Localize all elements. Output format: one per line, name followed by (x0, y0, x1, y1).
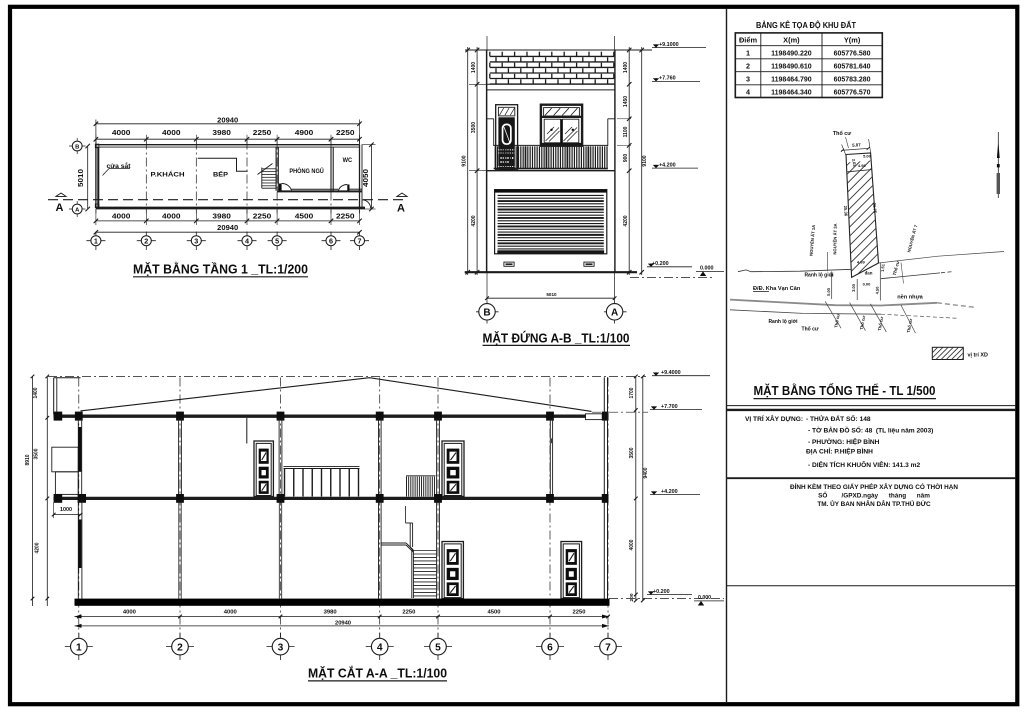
svg-text:2250: 2250 (336, 128, 355, 137)
svg-text:4.50: 4.50 (874, 286, 879, 295)
svg-text:VỊ TRÍ XÂY DỰNG:: VỊ TRÍ XÂY DỰNG: (745, 414, 803, 423)
svg-text:1000: 1000 (60, 507, 72, 513)
svg-text:3980: 3980 (212, 211, 231, 220)
svg-text:Ranh lộ giới: Ranh lộ giới (804, 272, 834, 278)
svg-text:20940: 20940 (217, 225, 238, 232)
svg-text:4200: 4200 (34, 542, 40, 553)
svg-text:5010: 5010 (76, 169, 85, 187)
svg-text:MẶT BẰNG TẦNG 1 _TL:1/200: MẶT BẰNG TẦNG 1 _TL:1/200 (133, 261, 308, 276)
svg-text:3.00: 3.00 (851, 283, 856, 292)
svg-text:9100: 9100 (642, 155, 648, 166)
svg-text:1: 1 (94, 236, 98, 245)
svg-text:đan: đan (865, 271, 873, 276)
svg-text:1450: 1450 (623, 96, 629, 107)
svg-text:20940: 20940 (335, 620, 351, 626)
svg-text:0.000: 0.000 (698, 595, 711, 601)
svg-text:25.36: 25.36 (843, 205, 849, 217)
svg-text:+7.700: +7.700 (661, 404, 678, 410)
svg-text:9100: 9100 (461, 155, 467, 166)
svg-text:3: 3 (278, 642, 284, 653)
svg-text:- PHƯỜNG: HIỆP BÌNH: - PHƯỜNG: HIỆP BÌNH (808, 437, 880, 446)
svg-text:MẶT CẮT A-A _TL:1/100: MẶT CẮT A-A _TL:1/100 (308, 665, 447, 680)
svg-text:2250: 2250 (253, 211, 271, 220)
svg-text:MẶT ĐỨNG A-B _TL:1/100: MẶT ĐỨNG A-B _TL:1/100 (483, 331, 630, 346)
svg-text:Đ/Đ. Kha Vạn Cân: Đ/Đ. Kha Vạn Cân (753, 286, 801, 292)
svg-text:5010: 5010 (546, 292, 557, 297)
svg-text:4: 4 (746, 87, 750, 96)
svg-text:+9.4000: +9.4000 (661, 370, 681, 376)
svg-text:1.51: 1.51 (880, 263, 886, 272)
svg-text:4900: 4900 (295, 128, 314, 137)
svg-text:2: 2 (746, 62, 750, 71)
svg-text:4.99: 4.99 (858, 163, 867, 168)
svg-text:1100: 1100 (623, 126, 629, 137)
svg-text:4000: 4000 (123, 610, 136, 616)
svg-text:1: 1 (76, 642, 82, 653)
svg-text:A: A (397, 203, 405, 215)
svg-text:PHÒNG NGỦ: PHÒNG NGỦ (289, 166, 324, 175)
svg-text:3980: 3980 (212, 128, 231, 137)
svg-text:4000: 4000 (112, 128, 131, 137)
svg-text:4500: 4500 (488, 610, 501, 616)
svg-text:1700: 1700 (629, 387, 635, 398)
svg-text:4000: 4000 (162, 211, 181, 220)
svg-text:0.000: 0.000 (700, 266, 714, 272)
svg-text:1198464.340: 1198464.340 (771, 89, 812, 96)
svg-text:Thổ cư: Thổ cư (802, 326, 819, 333)
svg-text:5.00: 5.00 (826, 287, 831, 296)
svg-text:4000: 4000 (112, 211, 131, 220)
svg-text:605783.280: 605783.280 (834, 77, 871, 84)
svg-text:5: 5 (435, 642, 441, 653)
svg-text:1400: 1400 (623, 62, 629, 73)
svg-text:2250: 2250 (336, 211, 355, 220)
svg-text:Ranh lộ giới: Ranh lộ giới (768, 319, 798, 325)
svg-text:8910: 8910 (25, 454, 31, 465)
svg-text:1198490.220: 1198490.220 (771, 51, 812, 58)
svg-text:BẢNG KÊ TỌA ĐỘ KHU ĐẤT: BẢNG KÊ TỌA ĐỘ KHU ĐẤT (756, 19, 857, 30)
svg-text:A: A (56, 202, 64, 214)
svg-text:6: 6 (547, 642, 553, 653)
svg-text:B: B (75, 145, 79, 151)
svg-text:2250: 2250 (253, 128, 271, 137)
svg-text:4000: 4000 (224, 610, 237, 616)
svg-text:3500: 3500 (471, 122, 477, 133)
svg-text:3: 3 (194, 236, 198, 245)
svg-text:4: 4 (377, 642, 383, 653)
svg-text:nền nhựa: nền nhựa (897, 294, 923, 300)
svg-text:605781.640: 605781.640 (834, 64, 871, 71)
svg-text:5.07: 5.07 (852, 142, 861, 148)
svg-text:2: 2 (177, 642, 183, 653)
svg-text:200: 200 (629, 593, 634, 601)
svg-text:5: 5 (275, 236, 279, 245)
svg-text:1400: 1400 (33, 387, 39, 398)
svg-text:+9.1000: +9.1000 (659, 42, 679, 48)
svg-text:Y(m): Y(m) (844, 35, 861, 44)
svg-text:4500: 4500 (295, 211, 314, 220)
svg-text:7: 7 (358, 236, 362, 245)
svg-text:4000: 4000 (629, 539, 635, 550)
svg-text:Thổ cư: Thổ cư (833, 130, 851, 137)
svg-text:1198464.790: 1198464.790 (771, 77, 812, 84)
svg-text:7: 7 (605, 642, 611, 653)
svg-text:605776.570: 605776.570 (834, 89, 871, 96)
svg-text:+0.200: +0.200 (653, 589, 670, 595)
svg-text:9400: 9400 (643, 467, 649, 478)
svg-text:2: 2 (144, 236, 148, 245)
svg-text:2250: 2250 (573, 610, 586, 616)
svg-text:5.00: 5.00 (863, 154, 872, 159)
svg-text:X(m): X(m) (783, 35, 800, 44)
svg-text:1: 1 (746, 49, 750, 58)
svg-text:0.00: 0.00 (863, 282, 872, 287)
svg-text:3: 3 (746, 75, 750, 84)
svg-text:4000: 4000 (162, 128, 181, 137)
svg-text:1400: 1400 (471, 62, 477, 73)
svg-text:TM. ỦY BAN NHÂN DÂN TP.THỦ ĐỨC: TM. ỦY BAN NHÂN DÂN TP.THỦ ĐỨC (817, 499, 931, 508)
svg-text:+0.200: +0.200 (652, 261, 669, 267)
svg-text:26.75: 26.75 (872, 202, 878, 214)
svg-text:NGUYỄN ẤT 3A: NGUYỄN ẤT 3A (832, 223, 838, 254)
svg-text:- DIỆN TÍCH KHUÔN VIÊN: 141.3: - DIỆN TÍCH KHUÔN VIÊN: 141.3 m2 (808, 460, 920, 469)
svg-text:20940: 20940 (217, 117, 238, 124)
svg-text:vị trí XD: vị trí XD (968, 353, 988, 359)
svg-text:4.99: 4.99 (857, 259, 866, 264)
svg-text:6: 6 (329, 236, 333, 245)
svg-text:4050: 4050 (361, 169, 370, 187)
svg-text:A: A (611, 307, 618, 318)
svg-text:605776.580: 605776.580 (834, 51, 871, 58)
svg-text:Điểm: Điểm (739, 35, 758, 44)
svg-text:3500: 3500 (33, 448, 39, 459)
svg-text:MẶT BẰNG TỔNG THỂ - TL 1/500: MẶT BẰNG TỔNG THỂ - TL 1/500 (754, 383, 936, 398)
svg-text:ĐỊA CHỈ: P.HIỆP BÌNH: ĐỊA CHỈ: P.HIỆP BÌNH (806, 446, 873, 455)
svg-text:WC: WC (343, 157, 353, 164)
svg-text:+4.200: +4.200 (661, 489, 678, 495)
svg-text:3500: 3500 (629, 447, 635, 458)
svg-text:+4.200: +4.200 (659, 162, 676, 168)
svg-text:1198490.610: 1198490.610 (771, 64, 812, 71)
svg-text:4200: 4200 (623, 215, 629, 226)
svg-text:4200: 4200 (471, 215, 477, 226)
svg-text:P.KHÁCH: P.KHÁCH (151, 170, 185, 179)
svg-text:3980: 3980 (324, 610, 337, 616)
svg-text:+7.760: +7.760 (659, 76, 676, 82)
svg-text:2250: 2250 (402, 610, 415, 616)
svg-text:900: 900 (623, 154, 629, 163)
svg-text:B: B (483, 307, 490, 318)
svg-text:cửa sắt: cửa sắt (107, 163, 131, 170)
svg-text:4: 4 (245, 236, 249, 245)
